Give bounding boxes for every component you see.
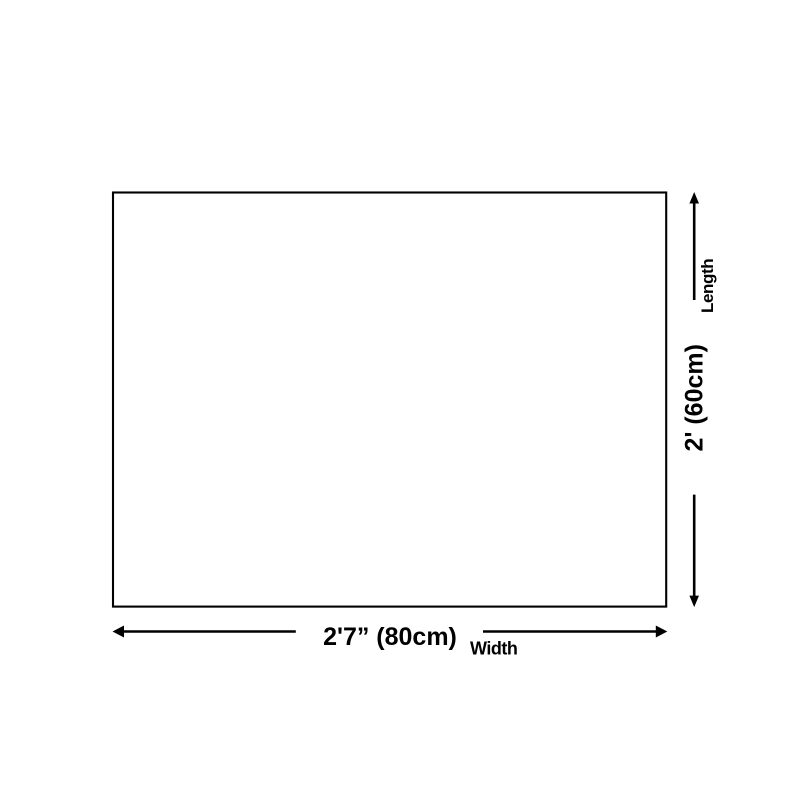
svg-text:2'7” (80cm): 2'7” (80cm): [323, 623, 457, 651]
svg-text:Width: Width: [470, 639, 517, 659]
svg-text:2' (60cm): 2' (60cm): [681, 344, 709, 451]
svg-text:Length: Length: [698, 259, 717, 313]
